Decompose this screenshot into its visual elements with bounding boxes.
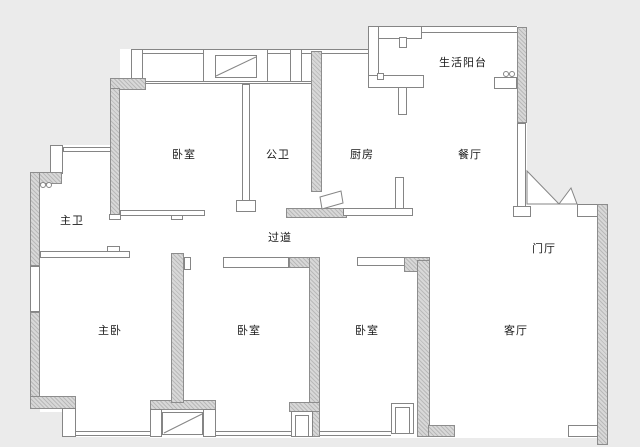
exterior-wall (30, 312, 40, 400)
label-bedroom-top: 卧室 (172, 146, 196, 162)
exterior-wall (110, 88, 120, 216)
interior-wall (120, 210, 205, 216)
entry-door-icon (527, 171, 577, 204)
window-band-bottom (313, 431, 391, 436)
wall-tab (568, 425, 598, 437)
wall-pillar (50, 145, 63, 174)
exterior-wall (311, 51, 322, 192)
wall-pillar (290, 49, 302, 84)
wall-box-inner (295, 415, 309, 437)
wall-corner (577, 204, 599, 217)
exterior-wall-right (597, 204, 608, 445)
window-band-inner (120, 81, 312, 84)
label-master-bedroom: 主卧 (98, 322, 122, 338)
exterior-wall (30, 172, 40, 266)
interior-wall (223, 257, 289, 268)
interior-wall-hatched (417, 260, 430, 437)
window-band-balcony (422, 26, 517, 33)
floor-plan: 生活阳台 卧室 公卫 厨房 餐厅 主卫 过道 门厅 主卧 卧室 卧室 客厅 (0, 0, 640, 447)
label-bedroom-mid: 卧室 (237, 322, 261, 338)
door-notch (171, 215, 183, 220)
wall-pillar (62, 408, 76, 437)
window-band-bottom (216, 431, 291, 436)
wall-detail (377, 73, 384, 80)
plumbing-icon (509, 71, 515, 77)
label-bedroom-right: 卧室 (355, 322, 379, 338)
label-kitchen: 厨房 (350, 146, 374, 162)
room-area-living (430, 204, 599, 438)
wall-tab-hatched (428, 425, 455, 437)
wall-tab (184, 257, 191, 270)
window-in-wall (30, 266, 40, 312)
interior-wall-hatched (171, 253, 184, 403)
interior-wall (242, 84, 250, 202)
interior-wall-hatched (286, 208, 347, 218)
interior-wall (395, 177, 404, 210)
window-band-left (63, 147, 111, 152)
bay-window-icon (162, 412, 203, 435)
interior-wall (357, 257, 405, 266)
label-dining: 餐厅 (458, 146, 482, 162)
wall-pillar (203, 409, 216, 437)
exterior-wall (517, 27, 527, 123)
interior-wall (398, 86, 407, 115)
label-public-bath: 公卫 (266, 146, 290, 162)
label-foyer: 门厅 (532, 240, 556, 256)
plumbing-icon (46, 182, 52, 188)
wall-pillar (150, 409, 162, 437)
balcony-wall-tab (399, 37, 407, 48)
label-corridor: 过道 (268, 229, 292, 245)
interior-wall (40, 251, 130, 258)
wall-foot (236, 200, 256, 212)
window-band-bottom (76, 431, 151, 436)
label-living: 客厅 (504, 322, 528, 338)
label-master-bath: 主卫 (60, 212, 84, 228)
bay-window-icon (215, 55, 257, 78)
wall-box-inner (395, 407, 410, 434)
wall-foot (513, 206, 531, 217)
counter (494, 77, 517, 89)
interior-wall (343, 208, 413, 216)
window-wall-right (517, 123, 526, 207)
label-balcony: 生活阳台 (439, 54, 487, 70)
door-notch (107, 246, 120, 252)
